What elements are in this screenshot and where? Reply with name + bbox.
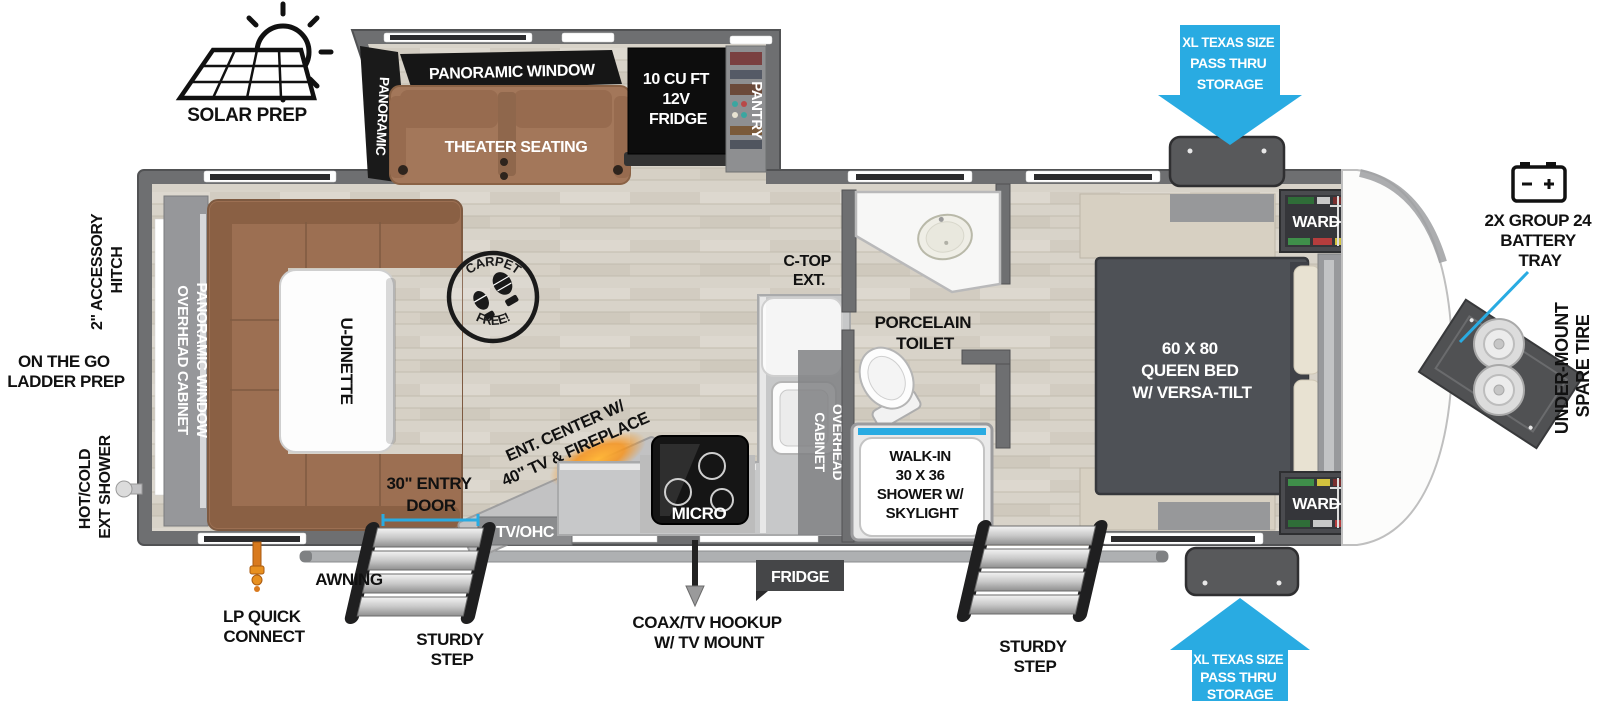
rear-window [155,219,164,495]
coax-tv-label: COAX/TV HOOKUP W/ TV MOUNT [632,613,785,652]
u-dinette-label: U-DINETTE [337,317,356,404]
overhead-cabinet-wall-label: OVERHEAD CABINET [174,285,191,435]
pillow [1294,266,1320,374]
pass-thru-door-top [1170,137,1284,186]
stove-micro: MICRO [652,436,748,524]
floorplan-page: SOLAR PREP 2" ACCESSORY HITCH ON THE GO … [0,0,1600,701]
rear-overhead-cabinet: OVERHEAD CABINET PANORAMIC WINDOW [164,196,210,526]
battery-icon [1513,167,1565,201]
floorplan-svg: SOLAR PREP 2" ACCESSORY HITCH ON THE GO … [0,0,1600,701]
ward-bottom-label: WARD [1292,496,1339,513]
lp-quick-connect-label: LP QUICK CONNECT [223,607,306,646]
pantry-label: PANTRY [748,81,765,139]
micro-label: MICRO [672,504,727,523]
slide-out: PANORAMIC WINDOW PANORAMIC WINDOW THEATE… [360,46,766,184]
ladder-prep-label: ON THE GO LADDER PREP [7,352,125,391]
pass-thru-bottom-label: XL TEXAS SIZE PASS THRU STORAGE [1193,651,1287,701]
theater-seating-sofa: THEATER SEATING [390,86,630,184]
tv-ohc-label: TV/OHC [496,524,555,541]
bedroom: 60 X 80 QUEEN BED W/ VERSA-TILT OVERHEAD… [1080,190,1358,534]
spare-tire-label: UNDER-MOUNT SPARE TIRE [1552,298,1593,434]
awning-label: AWNING [315,570,383,589]
carpet-free-stamp: CARPET FREE! [449,253,537,341]
kitchen-ohc-label-2: CABINET [812,412,828,472]
walk-in-shower: WALK-IN 30 X 36 SHOWER W/ SKYLIGHT [852,424,992,540]
dinette-table [280,270,394,452]
svg-text:FRIDGE: FRIDGE [771,569,830,586]
ward-top-label: WARD [1292,214,1339,231]
pantry: PANTRY [726,46,766,172]
solar-prep-label: SOLAR PREP [187,105,307,126]
theater-seating-label: THEATER SEATING [445,139,588,156]
queen-bed: 60 X 80 QUEEN BED W/ VERSA-TILT [1096,258,1320,494]
fridge-12v: 10 CU FT 12V FRIDGE [624,48,732,166]
pass-thru-door-bottom [1186,548,1298,595]
